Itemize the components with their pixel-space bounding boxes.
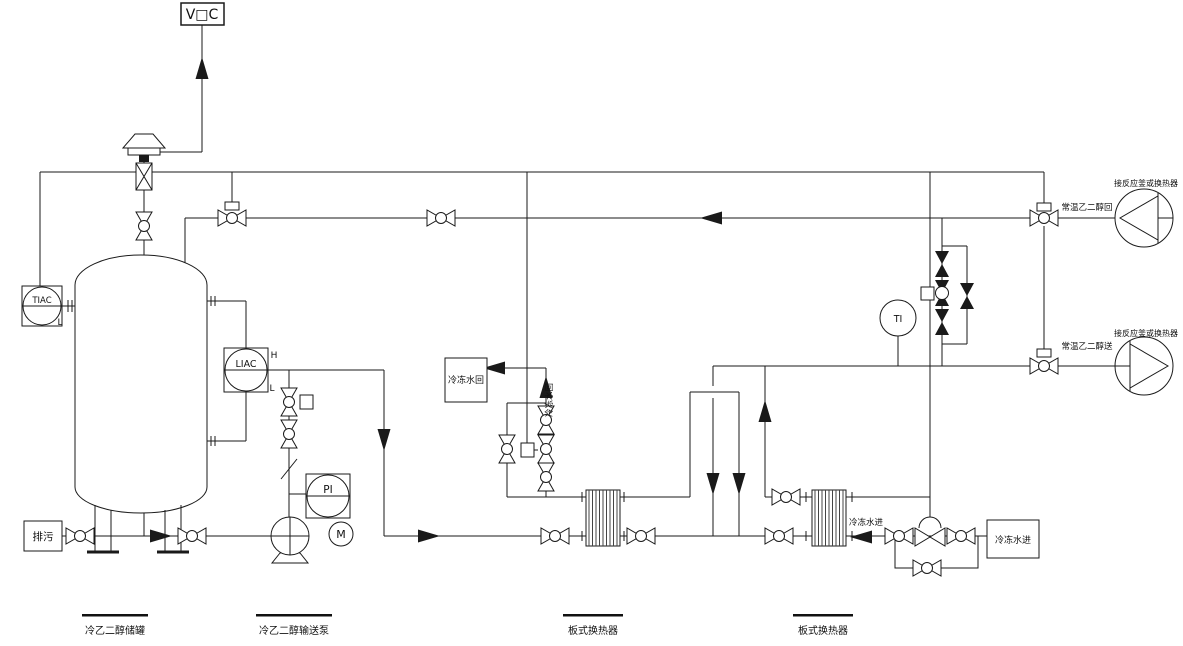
liac-tag: LIAC [235,359,256,370]
reactor-top-label: 接反应釜或换热器 [1114,178,1178,188]
cw-inlet-box: 冷冻水进 [987,520,1039,558]
pump-title: 冷乙二醇输送泵 [259,624,329,637]
pump-title-bar [256,614,332,617]
valve-hx2-top [772,489,800,505]
glycol-return-label: 常温乙二醇回 [1061,202,1112,213]
valve-drain [66,528,94,544]
cw-return-box: 冷冻水回 [445,358,487,402]
hx1-title: 板式换热器 [568,624,618,637]
reactor-bottom-label: 接反应釜或换热器 [1114,328,1178,338]
control-valve-glycol-supply [1030,349,1058,374]
tank-title-bar [82,614,148,617]
hx1-title-bar [563,614,623,617]
cw-return-riser-label: 冷冻水回 [544,383,555,417]
arrow-cw-inlet-left [850,531,872,544]
motor-label: M [336,528,346,541]
plate-heat-exchanger-2 [812,490,846,546]
arrow-hx2-feed-down [733,473,746,495]
tank-title: 冷乙二醇储罐 [85,624,145,637]
valve-bridge-bypass [960,283,974,309]
control-valve-cw-return [521,435,554,463]
transfer-pump [271,517,309,563]
cw-return-box-label: 冷冻水回 [448,374,484,386]
valve-cw-inlet-bypass [913,560,941,576]
valve-bridge-upper [935,251,949,277]
hx2-title-bar [793,614,853,617]
pi-tag: PI [323,484,332,496]
arrow-header-right [418,530,440,543]
valve-return-line [427,210,455,226]
vent-stack: V□C [123,3,224,240]
arrow-hx2-out-up [759,400,772,422]
control-valve-discharge [281,388,313,416]
pid-diagram: V□C [0,0,1183,646]
pid-canvas: V□C [0,0,1183,646]
valve-cw-return-lower [538,463,554,491]
tiac-tag: TIAC [31,296,51,306]
flow-arrows [150,57,872,544]
glycol-supply-label: 常温乙二醇送 [1061,341,1113,352]
arrow-return-left [700,212,722,225]
voc-label: V□C [186,7,219,23]
liac-instrument: LIAC H L [224,348,277,394]
arrow-drain-right [150,530,172,543]
valve-suction [178,528,206,544]
glycol-supply-pump [1115,337,1173,395]
valve-bridge-lower [935,309,949,335]
plate-heat-exchanger-1 [586,490,620,546]
ti-tag: TI [893,314,903,325]
valve-hx2-bottom [765,528,793,544]
breather-vent-hood [123,134,165,148]
liac-low-flag: L [269,384,274,394]
equipment-titles: 冷乙二醇储罐 冷乙二醇输送泵 板式换热器 板式换热器 [82,614,853,637]
valves [66,202,1058,576]
hx2-title: 板式换热器 [798,624,848,637]
ti-instrument: TI [880,300,916,336]
vent-valve [136,212,152,240]
valve-cw-inlet-left [885,528,913,544]
storage-tank [75,255,207,552]
arrow-supply-down [378,429,391,451]
control-valve-glycol-return [1030,203,1058,226]
arrow-recirc-down [707,473,720,495]
valve-discharge [281,420,297,448]
valve-cw-inlet-right [947,528,975,544]
control-valve-cw-inlet [915,517,945,546]
control-valve-return-tank [218,202,246,226]
cw-inlet-box-label: 冷冻水进 [995,534,1031,546]
drain-label: 排污 [33,530,54,543]
valve-hx1-outlet [627,528,655,544]
control-valve-bridge [921,280,949,306]
valve-cw-return-bypass [499,435,515,463]
drain-box: 排污 [24,521,62,551]
pump-motor: M [329,522,353,546]
pi-instrument: PI [306,474,350,518]
tiac-instrument: TIAC L [22,286,63,328]
tiac-low-flag: L [57,318,62,328]
arrow-vent-up [196,57,209,79]
liac-high-flag: H [271,351,278,361]
cw-inlet-floating-label: 冷冻水进 [849,517,884,528]
glycol-return-line [185,218,1115,263]
vent-stem [139,155,149,162]
valve-hx1-inlet [541,528,569,544]
glycol-return-pump [1115,189,1173,247]
